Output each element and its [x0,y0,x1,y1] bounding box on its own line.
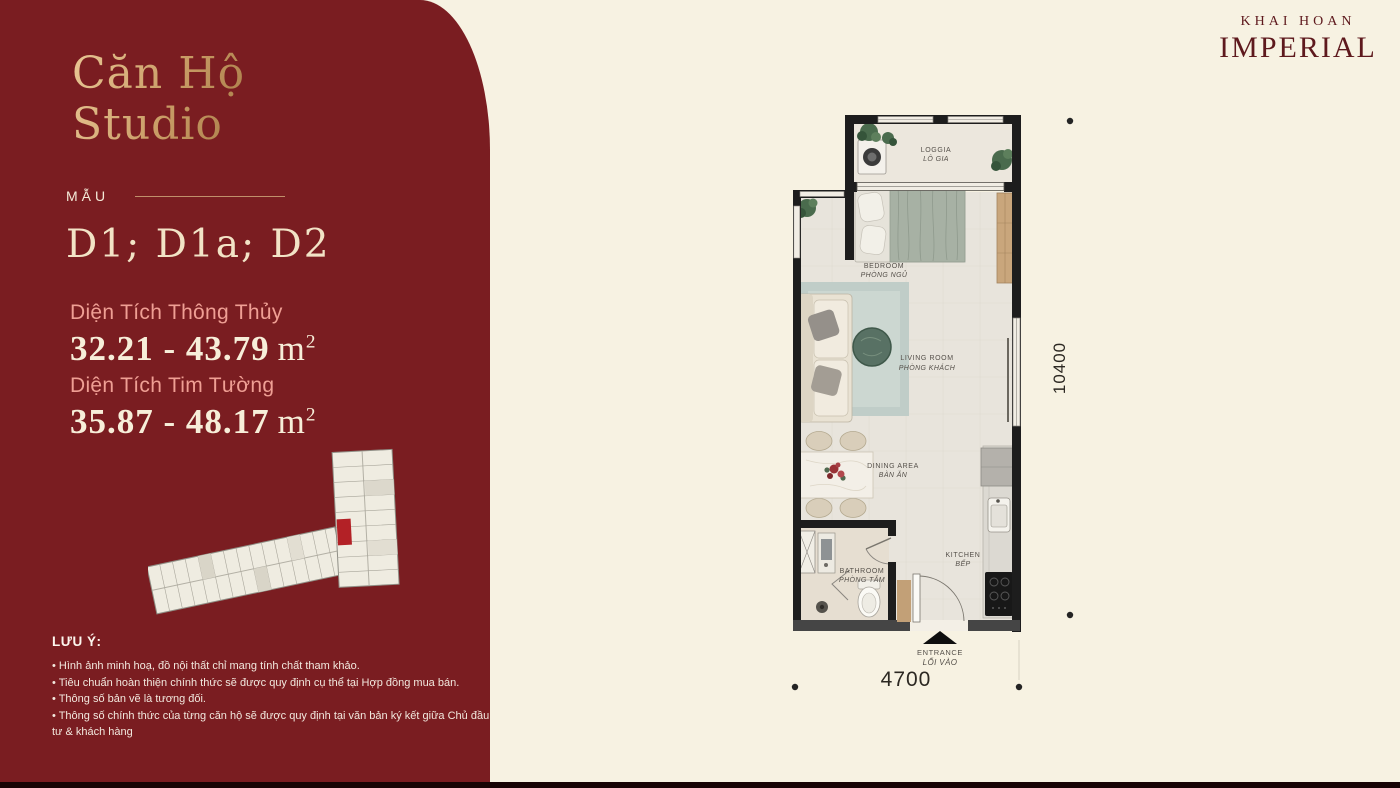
entrance-arrow-icon [923,631,957,644]
model-divider-line [135,196,285,197]
entrance-door-leaf [913,574,920,622]
locator-highlight-unit [337,519,352,546]
dimension-horizontal: 4700 [792,640,1022,691]
building-locator-map [148,446,403,616]
area-gross-number: 35.87 - 48.17 [70,402,270,441]
entrance-marker: ENTRANCE LỐI VÀO [917,631,963,667]
area-net-value: 32.21 - 43.79m2 [70,329,317,369]
kitchen-sink [988,498,1010,532]
title-line-1: Căn Hộ [72,48,245,99]
coffee-table [853,328,891,366]
dining-chair [840,499,866,518]
dining-table [799,452,873,498]
brand-name-main: IMPERIAL [1218,31,1378,65]
area-net-number: 32.21 - 43.79 [70,329,270,368]
area-unit-exponent: 2 [306,404,317,425]
bathroom-label: BATHROOM [840,568,885,575]
page-title: Căn HộStudio [72,48,245,150]
model-codes: D1; D1a; D2 [66,222,331,267]
living-room-label-vi: PHÒNG KHÁCH [899,363,956,372]
entrance-label-vi: LỐI VÀO [923,658,958,667]
dimension-height-value: 10400 [1050,342,1069,394]
dining-chair [806,432,832,451]
note-item: • Hình ảnh minh hoạ, đồ nội thất chỉ man… [52,658,490,675]
bedroom-label: BEDROOM [864,263,904,270]
dining-chair [840,432,866,451]
entry-threshold [897,580,911,622]
loggia-label: LOGGIA [921,147,951,154]
locator-wing-left [148,527,345,614]
loggia-label-vi: LÔ GIA [923,154,949,163]
entrance-label: ENTRANCE [917,648,963,657]
area-gross-block: Diện Tích Tim Tường 35.87 - 48.17m2 [70,374,317,442]
brand-logo: KHAI HOAN IMPERIAL [1218,14,1378,65]
cooktop [985,572,1013,616]
brochure-page: Căn HộStudio MẪU D1; D1a; D2 Diện Tích T… [0,0,1400,788]
living-room-label: LIVING ROOM [900,355,953,362]
dining-area-label: DINING AREA [867,463,919,470]
area-unit: m [278,402,306,441]
info-sidebar: Căn HộStudio MẪU D1; D1a; D2 Diện Tích T… [0,0,490,788]
brand-name-top: KHAI HOAN [1218,14,1378,30]
notes-title: LƯU Ý: [52,634,490,649]
dining-chair [806,499,832,518]
note-item: • Tiêu chuẩn hoàn thiện chính thức sẽ đư… [52,675,490,692]
service-shaft [799,531,815,573]
vanity-sink [818,533,835,573]
toilet [858,580,880,617]
title-line-2: Studio [72,99,223,150]
dimension-vertical: 10400 [1050,118,1073,618]
area-unit-exponent: 2 [306,331,317,352]
note-item: • Thông số chính thức của từng căn hộ sẽ… [52,708,490,741]
bottom-edge-strip [0,782,1400,788]
locator-wing-right [332,449,399,587]
kitchen-label-vi: BẾP [955,559,970,568]
model-row: MẪU [66,188,285,204]
note-item: • Thông số bản vẽ là tương đối. [52,691,490,708]
dimension-width-value: 4700 [881,668,932,691]
washing-machine [858,140,886,174]
model-label: MẪU [66,188,109,204]
dining-area-label-vi: BÀN ĂN [879,470,908,479]
notes-section: LƯU Ý: • Hình ảnh minh hoạ, đồ nội thất … [52,634,490,741]
bed [855,186,965,262]
area-gross-label: Diện Tích Tim Tường [70,374,317,398]
kitchen-counter [981,446,1013,618]
area-unit: m [278,329,306,368]
bathroom-label-vi: PHÒNG TẮM [839,575,885,584]
area-gross-value: 35.87 - 48.17m2 [70,402,317,442]
area-net-block: Diện Tích Thông Thủy 32.21 - 43.79m2 [70,301,317,369]
sofa [798,294,852,422]
area-net-label: Diện Tích Thông Thủy [70,301,317,325]
bedroom-label-vi: PHÒNG NGỦ [861,270,908,279]
floor-plan: LOGGIA LÔ GIA BEDROOM PHÒNG NGỦ LIVING R… [740,90,1140,730]
notes-list: • Hình ảnh minh hoạ, đồ nội thất chỉ man… [52,658,490,741]
kitchen-label: KITCHEN [946,552,981,559]
wardrobe [997,193,1013,283]
